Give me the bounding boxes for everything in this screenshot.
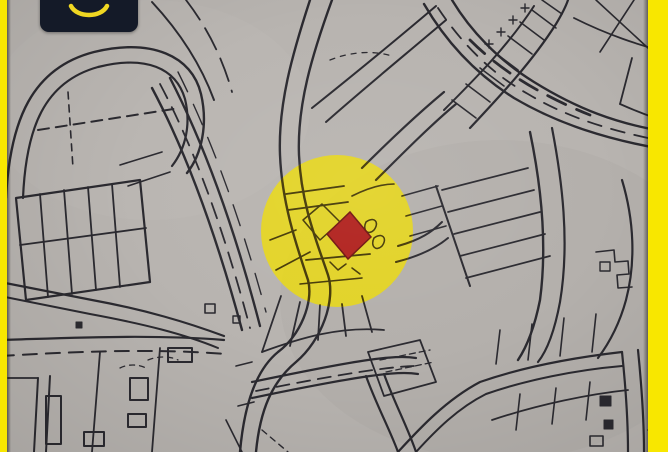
cadastral-map xyxy=(0,0,668,452)
smile-arc-icon xyxy=(67,3,111,21)
right-frame-stripe xyxy=(648,0,668,452)
left-frame-stripe xyxy=(0,0,7,452)
sakani-logo-wordmark: SAKANI xyxy=(49,0,128,2)
sakani-logo: SAKANI xyxy=(40,0,138,32)
map-screenshot: { "screen": { "kind": "scanned-cadastral… xyxy=(0,0,668,452)
